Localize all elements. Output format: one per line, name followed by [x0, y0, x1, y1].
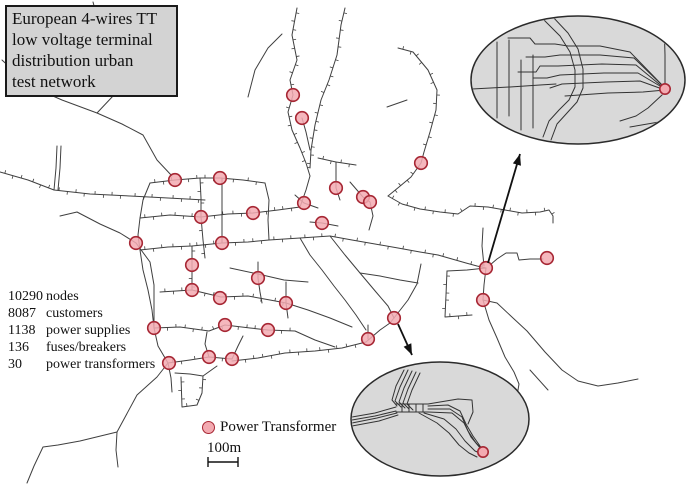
service-tick — [12, 176, 13, 179]
service-tick — [392, 196, 394, 199]
inset-pointer-arrow — [488, 154, 521, 263]
service-tick — [275, 298, 276, 301]
service-tick — [314, 130, 317, 131]
network-line — [530, 370, 548, 390]
network-line — [387, 100, 407, 107]
arrow-head-icon — [513, 154, 521, 166]
service-tick — [293, 30, 296, 31]
service-tick — [271, 356, 272, 359]
service-tick — [196, 399, 199, 400]
power-transformer-marker — [186, 284, 199, 297]
network-line — [388, 196, 553, 223]
service-tick — [346, 344, 347, 347]
service-tick — [39, 185, 40, 188]
arrow-shaft — [488, 154, 520, 263]
service-tick — [460, 209, 462, 212]
power-transformer-marker — [214, 292, 227, 305]
network-line — [310, 8, 345, 168]
service-tick — [204, 293, 205, 296]
title-line: European 4-wires TT — [12, 8, 172, 29]
power-transformer-marker — [362, 333, 375, 346]
transformers-layer — [130, 89, 554, 370]
service-tick — [471, 261, 472, 264]
scale-bar-label: 100m — [207, 440, 241, 457]
network-line — [58, 146, 61, 190]
power-transformer-marker — [247, 207, 260, 220]
service-tick — [316, 121, 319, 122]
network-line — [140, 207, 300, 218]
network-line — [490, 253, 543, 265]
service-tick — [518, 212, 519, 215]
network-line — [483, 300, 638, 386]
network-line — [54, 146, 57, 190]
service-tick — [419, 62, 421, 64]
service-tick — [302, 151, 305, 152]
power-transformer-marker — [130, 237, 143, 250]
power-transformer-marker — [415, 157, 428, 170]
inset-ellipse — [471, 16, 685, 144]
service-tick — [414, 208, 415, 211]
power-transformer-marker — [262, 324, 275, 337]
service-tick — [501, 209, 502, 212]
title-line: test network — [12, 71, 172, 92]
service-tick — [429, 122, 432, 123]
service-tick — [544, 208, 545, 211]
service-tick — [294, 133, 297, 134]
inset-ellipse — [351, 362, 529, 476]
power-transformer-marker — [287, 89, 300, 102]
service-tick — [388, 246, 389, 249]
service-tick — [296, 56, 299, 57]
service-tick — [411, 172, 414, 174]
power-transformer-legend-icon — [202, 421, 215, 434]
service-tick — [292, 48, 295, 49]
figure-network-test-map: European 4-wires TT low voltage terminal… — [0, 0, 690, 485]
stat-row: 10290 nodes — [8, 288, 155, 305]
power-transformer-marker — [660, 84, 670, 94]
network-line — [248, 34, 282, 97]
power-transformer-marker — [364, 196, 377, 209]
service-tick — [310, 138, 313, 139]
service-tick — [433, 254, 434, 257]
service-tick — [398, 203, 400, 206]
power-transformer-marker — [298, 197, 311, 210]
title-line: low voltage terminal — [12, 29, 172, 50]
service-tick — [262, 354, 263, 357]
power-transformer-marker — [195, 211, 208, 224]
network-line — [438, 255, 486, 268]
stat-row: 8087 customers — [8, 305, 155, 322]
power-transformer-marker — [163, 357, 176, 370]
service-tick — [33, 179, 34, 182]
service-tick — [315, 112, 318, 113]
title-box: European 4-wires TT low voltage terminal… — [5, 5, 178, 97]
power-transformer-marker — [214, 172, 227, 185]
network-line — [27, 363, 168, 483]
network-line — [394, 264, 421, 318]
service-tick — [279, 351, 280, 354]
network-line — [360, 273, 418, 283]
service-tick — [429, 137, 432, 138]
service-tick — [289, 116, 292, 117]
power-transformer-marker — [203, 351, 216, 364]
stat-row: 136 fuses/breakers — [8, 339, 155, 356]
title-line: distribution urban — [12, 50, 172, 71]
service-tick — [425, 250, 426, 253]
stat-row: 1138 power supplies — [8, 322, 155, 339]
service-tick — [344, 13, 347, 14]
inset-pointer-arrow — [398, 324, 412, 355]
power-transformer-marker — [216, 237, 229, 250]
service-tick — [435, 115, 438, 116]
service-tick — [335, 60, 338, 61]
service-tick — [253, 294, 254, 297]
service-tick — [399, 183, 401, 185]
power-transformer-marker — [330, 182, 343, 195]
service-tick — [335, 234, 336, 237]
stat-label: customers — [46, 305, 103, 322]
network-line — [330, 236, 438, 255]
scale-bar — [208, 457, 238, 467]
network-line — [181, 376, 203, 407]
service-tick — [320, 105, 323, 106]
service-tick — [365, 242, 366, 245]
power-transformer-marker — [169, 174, 182, 187]
stat-value: 10290 — [8, 288, 46, 305]
service-tick — [411, 250, 412, 253]
network-line — [60, 212, 136, 243]
service-tick — [395, 190, 397, 192]
service-tick — [295, 142, 298, 143]
service-tick — [416, 54, 418, 56]
network-line — [230, 268, 308, 282]
service-tick — [312, 147, 315, 148]
service-tick — [330, 161, 331, 164]
service-tick — [443, 253, 444, 256]
service-tick — [407, 202, 408, 205]
service-tick — [296, 13, 299, 14]
top-right-zoom-inset — [471, 16, 685, 144]
power-transformer-marker — [478, 447, 488, 457]
service-tick — [288, 125, 291, 126]
service-tick — [552, 212, 555, 214]
stat-row: 30 power transformers — [8, 356, 155, 373]
legend-label: Power Transformer — [220, 419, 336, 436]
service-tick — [327, 85, 330, 86]
service-tick — [21, 175, 22, 178]
service-tick — [321, 91, 324, 92]
power-transformer-marker — [219, 319, 232, 332]
service-tick — [330, 67, 333, 68]
power-transformer-marker — [252, 272, 265, 285]
power-transformer-marker — [280, 297, 293, 310]
service-tick — [430, 73, 433, 74]
stat-value: 30 — [8, 356, 46, 373]
service-tick — [290, 72, 293, 73]
service-tick — [355, 345, 356, 348]
service-tick — [407, 180, 409, 182]
stats-list: 10290 nodes 8087 customers 1138 power su… — [8, 288, 155, 373]
network-line — [318, 158, 356, 165]
network-line — [175, 366, 217, 376]
power-transformer-marker — [226, 353, 239, 366]
service-tick — [213, 326, 214, 329]
network-line — [445, 271, 472, 317]
stat-label: fuses/breakers — [46, 339, 126, 356]
service-tick — [343, 238, 344, 241]
network-line — [140, 236, 330, 250]
power-transformer-marker — [388, 312, 401, 325]
service-tick — [431, 82, 434, 83]
service-tick — [380, 242, 381, 245]
network-line — [295, 331, 335, 347]
power-transformer-marker — [477, 294, 490, 307]
power-transformer-marker — [296, 112, 309, 125]
stat-value: 8087 — [8, 305, 46, 322]
service-tick — [49, 185, 50, 188]
network-line — [286, 303, 352, 327]
stat-label: nodes — [46, 288, 79, 305]
service-tick — [339, 20, 342, 21]
service-tick — [302, 161, 305, 162]
service-tick — [403, 246, 404, 249]
service-tick — [410, 51, 411, 54]
service-tick — [493, 205, 494, 208]
power-transformer-marker — [186, 259, 199, 272]
service-tick — [295, 65, 298, 66]
stat-value: 1138 — [8, 322, 46, 339]
power-transformer-marker — [480, 262, 493, 275]
power-transformer-marker — [316, 217, 329, 230]
power-transformer-marker — [541, 252, 554, 265]
service-tick — [423, 144, 426, 145]
service-tick — [510, 208, 511, 211]
service-tick — [357, 238, 358, 241]
service-tick — [457, 257, 458, 260]
bottom-right-zoom-inset — [351, 362, 529, 476]
service-tick — [5, 170, 6, 173]
service-tick — [291, 21, 294, 22]
legend: Power Transformer — [202, 419, 336, 436]
stat-label: power transformers — [46, 356, 155, 373]
service-tick — [291, 84, 294, 85]
network-line — [116, 432, 118, 467]
service-tick — [293, 39, 296, 40]
service-tick — [403, 46, 404, 49]
network-line — [232, 342, 366, 361]
network-line — [482, 228, 484, 266]
service-tick — [323, 156, 324, 159]
stat-label: power supplies — [46, 322, 130, 339]
arrow-head-icon — [404, 343, 412, 355]
service-tick — [286, 107, 289, 108]
network-line — [300, 238, 366, 330]
stat-value: 136 — [8, 339, 46, 356]
service-tick — [330, 76, 333, 77]
